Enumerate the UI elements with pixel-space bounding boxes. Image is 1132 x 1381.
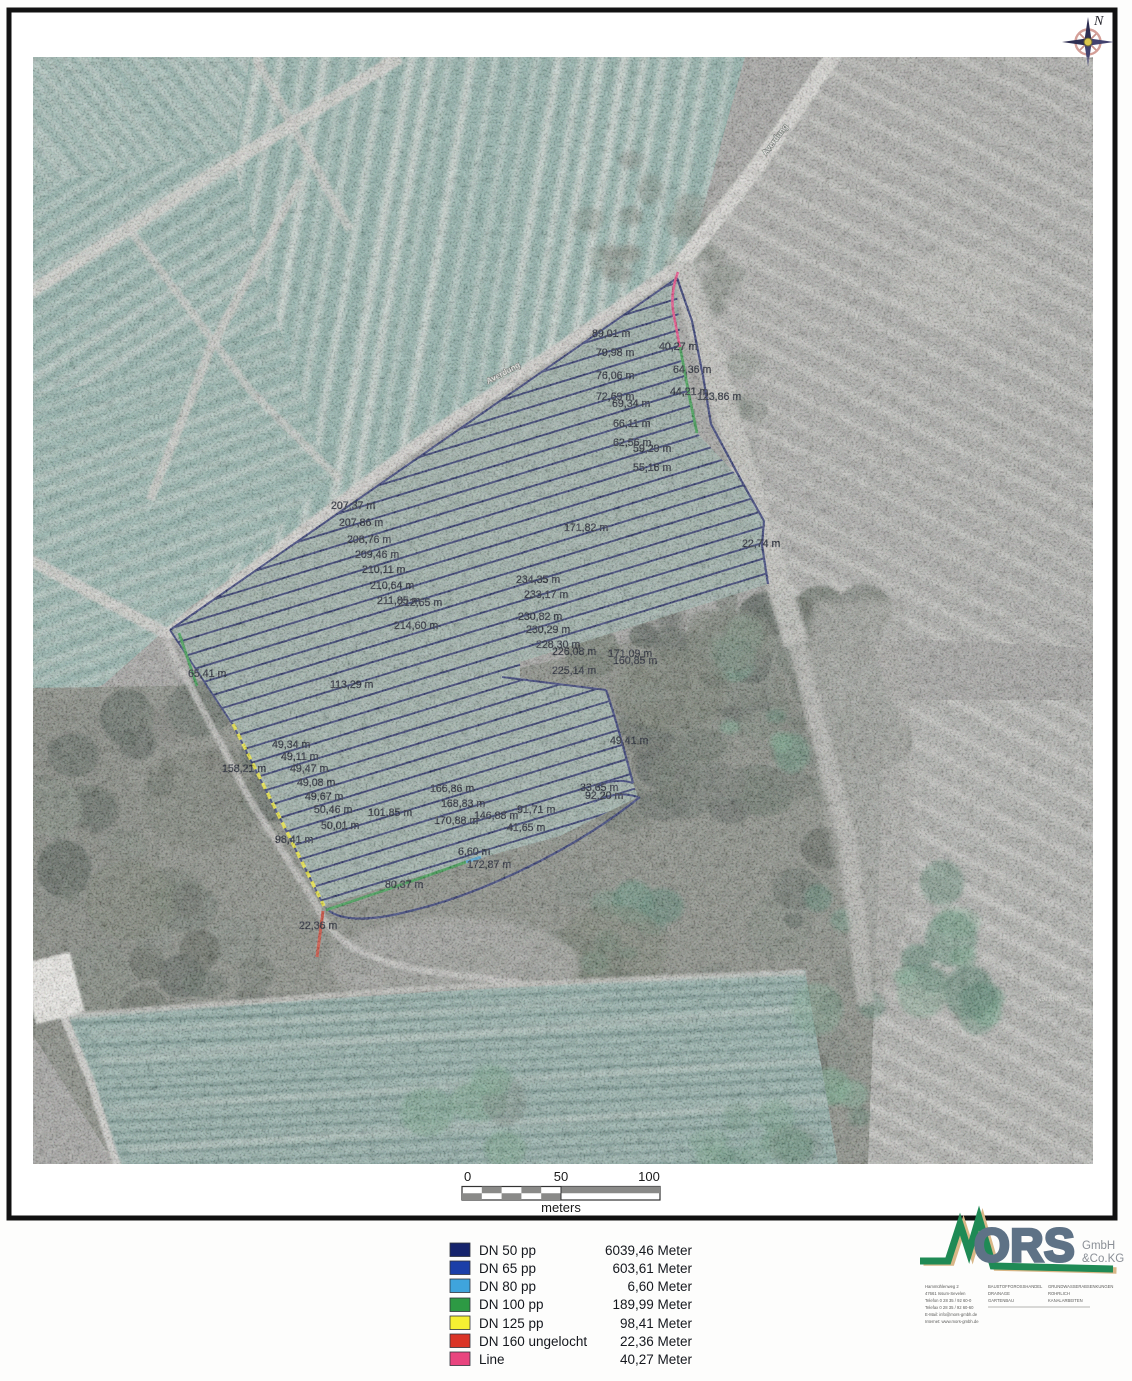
svg-text:50: 50	[554, 1169, 568, 1184]
svg-text:Telefax 0 28 35 / 92 60-60: Telefax 0 28 35 / 92 60-60	[925, 1305, 974, 1310]
svg-text:GARTENBAU: GARTENBAU	[988, 1298, 1014, 1303]
svg-text:603,61 Meter: 603,61 Meter	[612, 1261, 692, 1276]
svg-text:DN 50 pp: DN 50 pp	[479, 1243, 536, 1258]
svg-text:DN 125 pp: DN 125 pp	[479, 1316, 544, 1331]
svg-text:40,27 Meter: 40,27 Meter	[620, 1352, 693, 1367]
svg-text:DRAINAGE: DRAINAGE	[988, 1291, 1010, 1296]
svg-text:100: 100	[638, 1169, 660, 1184]
svg-text:GRUNDWASSERABSENKUNGEN: GRUNDWASSERABSENKUNGEN	[1048, 1284, 1113, 1289]
svg-text:DN 100 pp: DN 100 pp	[479, 1297, 544, 1312]
svg-text:Hammühlenweg 2: Hammühlenweg 2	[925, 1284, 959, 1289]
svg-text:6039,46 Meter: 6039,46 Meter	[605, 1243, 693, 1258]
svg-text:189,99 Meter: 189,99 Meter	[612, 1297, 692, 1312]
svg-text:BAUSTOFFGROSSHANDEL: BAUSTOFFGROSSHANDEL	[988, 1284, 1043, 1289]
svg-text:E-Mail: info@mors-gmbh.de: E-Mail: info@mors-gmbh.de	[925, 1312, 978, 1317]
svg-text:0: 0	[464, 1169, 471, 1184]
svg-text:Internet: www.mors-gmbh.de: Internet: www.mors-gmbh.de	[925, 1319, 979, 1324]
svg-text:DN 160 ungelocht: DN 160 ungelocht	[479, 1334, 587, 1349]
svg-text:KANALARBEITEN: KANALARBEITEN	[1048, 1298, 1083, 1303]
svg-text:22,36 Meter: 22,36 Meter	[620, 1334, 693, 1349]
svg-text:DN 65 pp: DN 65 pp	[479, 1261, 536, 1276]
svg-text:47661 Issum-Sevelen: 47661 Issum-Sevelen	[925, 1291, 966, 1296]
svg-text:GmbH: GmbH	[1082, 1240, 1115, 1252]
svg-text:meters: meters	[541, 1200, 581, 1215]
svg-text:6,60 Meter: 6,60 Meter	[627, 1279, 692, 1294]
svg-text:N: N	[1093, 14, 1104, 29]
svg-text:DN 80 pp: DN 80 pp	[479, 1279, 536, 1294]
svg-text:ORS: ORS	[974, 1219, 1075, 1271]
svg-text:Line: Line	[479, 1352, 505, 1367]
svg-text:Telefon 0 28 35 / 92 60-0: Telefon 0 28 35 / 92 60-0	[925, 1298, 972, 1303]
svg-text:&Co.KG: &Co.KG	[1082, 1253, 1124, 1265]
svg-text:98,41 Meter: 98,41 Meter	[620, 1316, 693, 1331]
svg-text:ROHRLICH: ROHRLICH	[1048, 1291, 1070, 1296]
